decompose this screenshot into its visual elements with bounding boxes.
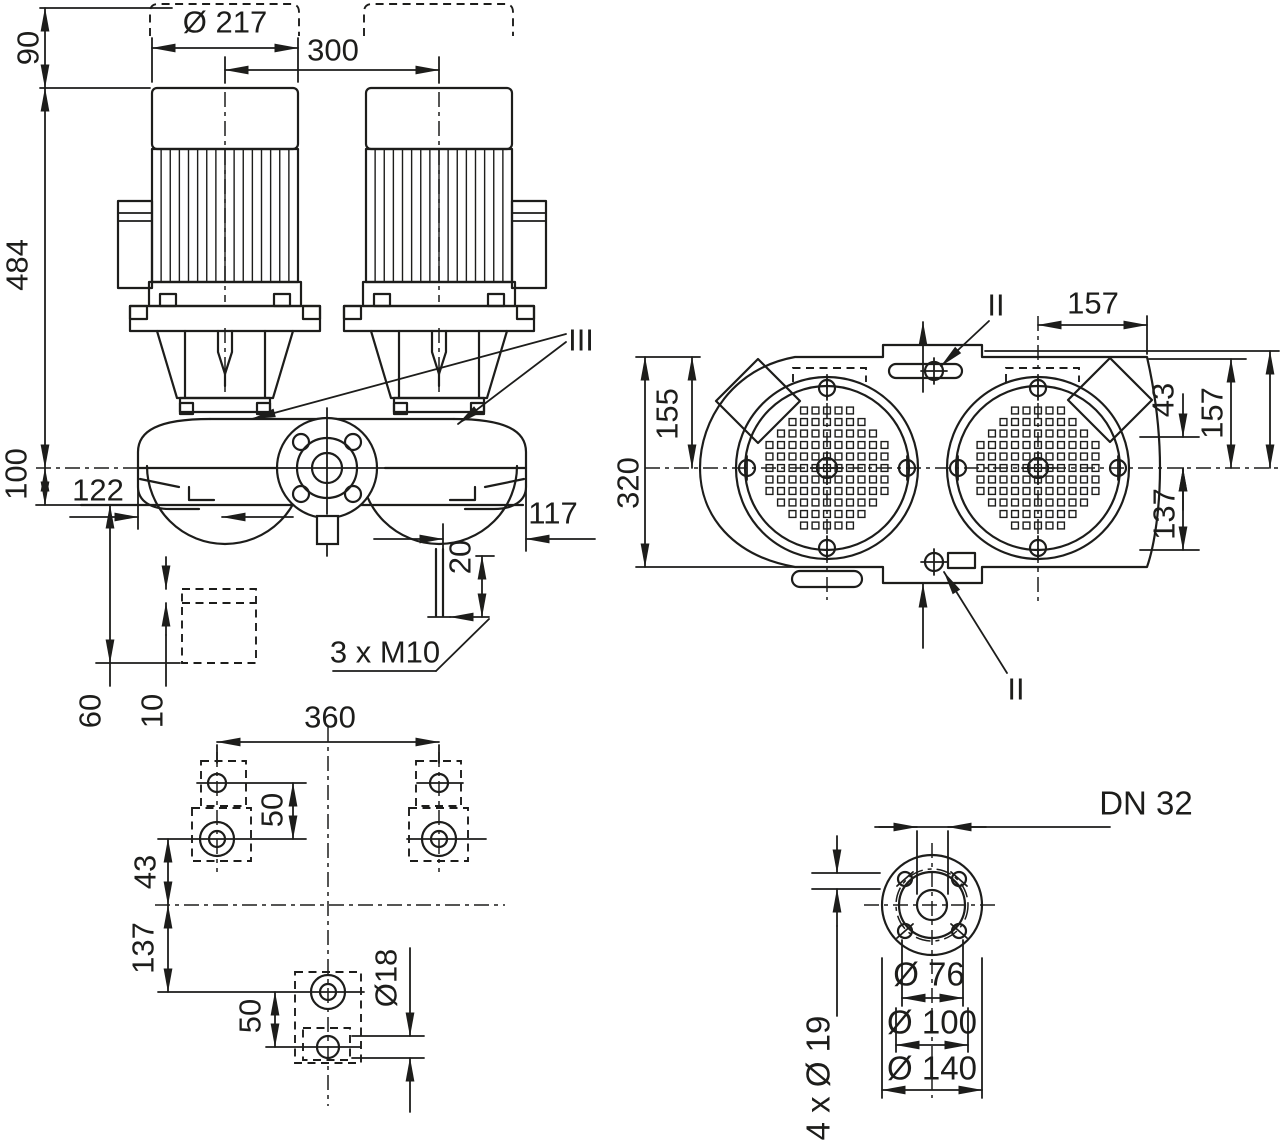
pump-casing-top — [700, 345, 1160, 587]
dim-10-label: 10 — [135, 694, 170, 728]
terminal-box-right — [512, 201, 546, 288]
bolt-holes-label: 4 x Ø 19 — [800, 1016, 837, 1141]
foundation-view: 360 50 43 137 50 Ø18 — [126, 700, 506, 1113]
dim-484-label: 484 — [0, 239, 35, 291]
motor-left — [118, 88, 320, 414]
drain-plug — [317, 516, 338, 544]
terminal-box-top-left — [716, 359, 800, 443]
dim-320-label: 320 — [611, 457, 646, 509]
dim-50-lower-label: 50 — [233, 999, 268, 1033]
section-mark-II-bottom: II — [1007, 672, 1024, 707]
dim-217-label: Ø 217 — [183, 5, 267, 40]
dim-117-label: 117 — [528, 496, 577, 531]
dim-137-label: 137 — [126, 922, 161, 974]
dim-140-label: Ø 140 — [887, 1050, 977, 1087]
terminal-box-left — [118, 201, 152, 288]
technical-drawing-page: 90 484 100 Ø 217 300 122 117 20 3 x M10 … — [0, 0, 1280, 1141]
dim-76-label: Ø 76 — [893, 956, 965, 993]
dim-90-label: 90 — [11, 31, 46, 65]
dim-20-label: 20 — [443, 540, 478, 574]
dim-43-top-label: 43 — [1146, 383, 1181, 417]
section-mark-II-top: II — [987, 288, 1004, 323]
dim-122-label: 122 — [72, 473, 124, 508]
nominal-diameter-label: DN 32 — [1099, 785, 1193, 822]
dim-100-label: 100 — [0, 448, 34, 500]
top-view-dimensions — [636, 316, 1279, 673]
pump-dimension-drawing: 90 484 100 Ø 217 300 122 117 20 3 x M10 … — [0, 0, 1280, 1141]
dim-18-label: Ø18 — [369, 949, 404, 1008]
dim-60-label: 60 — [73, 694, 108, 728]
dim-157-top-label: 157 — [1067, 286, 1119, 321]
dim-360-label: 360 — [304, 700, 356, 735]
section-mark-III: III — [568, 323, 594, 358]
dim-50-upper-label: 50 — [255, 793, 290, 827]
motor-right — [344, 88, 546, 414]
dim-137-top-label: 137 — [1147, 488, 1182, 540]
foundation-port-dashed — [182, 589, 256, 663]
dim-100-flange-label: Ø 100 — [887, 1004, 977, 1041]
discharge-flange-front — [266, 408, 388, 556]
dim-155-label: 155 — [650, 388, 685, 440]
top-view: 320 155 157 43 157 137 II II — [611, 286, 1280, 707]
tapped-holes-label: 3 x M10 — [330, 635, 440, 670]
flange-view: DN 32 Ø 76 Ø 100 Ø 140 4 x Ø 19 — [800, 785, 1193, 1141]
bolt-pad-upper-right — [407, 761, 486, 861]
dim-43-label: 43 — [128, 855, 163, 889]
dim-157-right-label: 157 — [1195, 387, 1230, 439]
front-view: 90 484 100 Ø 217 300 122 117 20 3 x M10 … — [0, 4, 595, 728]
dim-300-label: 300 — [307, 33, 359, 68]
